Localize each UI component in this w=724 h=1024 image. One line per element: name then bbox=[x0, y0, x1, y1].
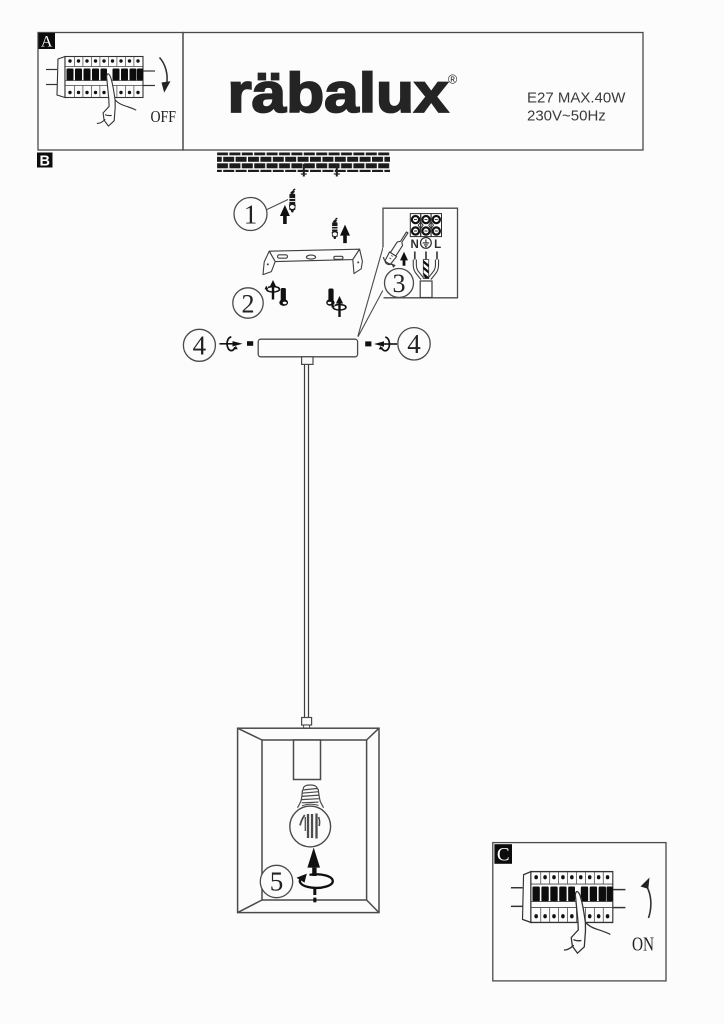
svg-text:räbalux: räbalux bbox=[228, 61, 449, 124]
svg-text:E27 MAX.40W: E27 MAX.40W bbox=[527, 90, 626, 107]
svg-text:N: N bbox=[410, 239, 418, 251]
svg-text:1: 1 bbox=[244, 199, 258, 229]
svg-text:3: 3 bbox=[393, 269, 406, 298]
svg-text:ON: ON bbox=[632, 934, 654, 956]
svg-text:4: 4 bbox=[193, 331, 207, 361]
svg-text:B: B bbox=[39, 154, 49, 170]
svg-text:®: ® bbox=[448, 73, 458, 87]
svg-text:OFF: OFF bbox=[151, 107, 177, 126]
svg-text:230V~50Hz: 230V~50Hz bbox=[527, 108, 606, 125]
svg-text:5: 5 bbox=[270, 867, 284, 897]
svg-text:L: L bbox=[434, 239, 441, 251]
svg-text:A: A bbox=[41, 34, 53, 51]
svg-text:4: 4 bbox=[407, 329, 421, 359]
svg-text:C: C bbox=[497, 845, 510, 866]
svg-text:2: 2 bbox=[242, 289, 255, 318]
